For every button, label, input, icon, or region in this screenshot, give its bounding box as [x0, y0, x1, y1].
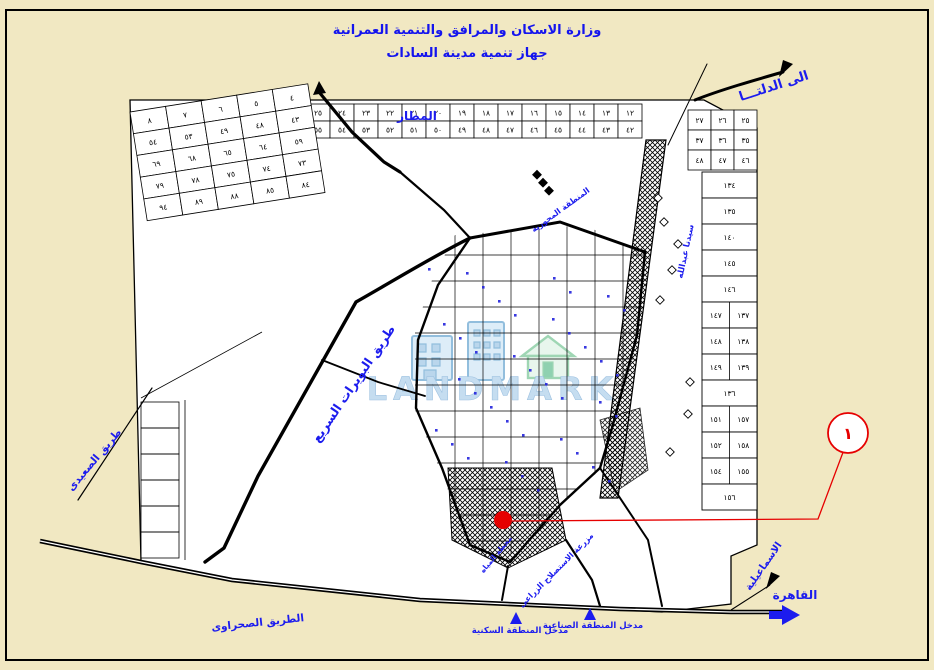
- parcel-number: ٢٥: [741, 116, 749, 125]
- parcel-number: ٤٨: [255, 120, 264, 130]
- building-tick: [505, 461, 508, 464]
- parcel-number: ٢٦: [718, 116, 726, 125]
- parcel-number: ٥٤: [148, 137, 157, 147]
- northeast-block-grid: ٢٧٢٦٢٥٣٧٣٦٣٥٤٨٤٧٤٦: [688, 110, 757, 170]
- parcel-number: ٤٨: [695, 156, 703, 165]
- parcel-number: ١٤٩: [710, 363, 722, 372]
- building-tick: [467, 457, 470, 460]
- building-tick: [537, 489, 540, 492]
- parcel-number: ٣٦: [718, 136, 726, 145]
- parcel-number: ١٣٨: [737, 337, 749, 346]
- building-tick: [498, 300, 501, 303]
- building-tick: [600, 360, 603, 363]
- parcel-number: ١٣٥: [723, 207, 735, 216]
- parcel-number: ٥٩: [294, 136, 303, 146]
- east-column-grid: ١٣٤١٣٥١٤٠١٤٥١٤٦١٤٧١٣٧١٤٨١٣٨١٤٩١٣٩١٣٦١٥١١…: [702, 172, 757, 510]
- label-industrial-entrance: مدخل المنطقة الصناعية: [543, 621, 643, 631]
- parcel-number: ١٤٨: [710, 337, 722, 346]
- building-tick: [466, 272, 469, 275]
- building-tick: [545, 383, 548, 386]
- parcel-number: ٥٠: [434, 126, 442, 135]
- parcel-number: ١٥٦: [723, 493, 735, 502]
- parcel-number: ٧٨: [191, 175, 200, 185]
- parcel-number: ١٤٠: [723, 233, 735, 242]
- parcel-number: ١٥٥: [737, 467, 749, 476]
- parcel-number: ٥٢: [386, 126, 394, 135]
- building-tick: [474, 392, 477, 395]
- ministry-title: وزارة الاسكان والمرافق والتنمية العمراني…: [333, 23, 602, 38]
- label-cairo: القاهرة: [773, 588, 818, 602]
- parcel-number: ١٥: [554, 109, 562, 118]
- label-airport: المطار: [396, 109, 437, 123]
- building-tick: [552, 318, 555, 321]
- cairo-arrow-icon: [769, 605, 800, 625]
- parcel-number: ١٣٤: [723, 181, 735, 190]
- parcel-number: ٥٣: [362, 126, 370, 135]
- parcel-number: ١٦: [530, 109, 538, 118]
- parcel-number: ١٨: [482, 109, 490, 118]
- building-tick: [569, 291, 572, 294]
- parcel-number: ٤٩: [219, 126, 228, 136]
- parcel-number: ٤٦: [741, 156, 749, 165]
- building-tick: [435, 429, 438, 432]
- north-arrow-icon: [313, 81, 326, 95]
- parcel-number: ٣٧: [695, 136, 703, 145]
- building-tick: [561, 397, 564, 400]
- building-tick: [560, 438, 563, 441]
- parcel-number: ٤٤: [578, 126, 586, 135]
- parcel-number: ٢٧: [695, 116, 703, 125]
- building-tick: [458, 378, 461, 381]
- parcel-number: ٦٥: [223, 148, 232, 158]
- building-tick: [568, 332, 571, 335]
- site-dot-marker: [494, 511, 512, 529]
- parcel-number: ١٣٧: [737, 311, 749, 320]
- parcel-number: ١٥٨: [737, 441, 749, 450]
- building-tick: [615, 415, 618, 418]
- junction-arrow-icon: [766, 572, 780, 589]
- parcel-number: ١٢: [626, 109, 634, 118]
- parcel-number: ٥١: [410, 126, 418, 135]
- parcel-number: ١٤٥: [723, 259, 735, 268]
- parcel-number: ٦٩: [152, 159, 161, 169]
- parcel-number: ٤٩: [458, 126, 466, 135]
- parcel-number: ٣٥: [741, 136, 749, 145]
- parcel-number: ٨٥: [265, 185, 274, 195]
- building-tick: [584, 346, 587, 349]
- building-tick: [592, 466, 595, 469]
- parcel-number: ٤٨: [482, 126, 490, 135]
- parcel-number: ٥٤: [338, 126, 346, 135]
- building-tick: [607, 295, 610, 298]
- building-tick: [553, 277, 556, 280]
- parcel-number: ١٣٩: [737, 363, 749, 372]
- parcel-number: ٦٨: [187, 153, 196, 163]
- parcel-number: ١٤٦: [723, 285, 735, 294]
- parcel-number: ٤٢: [626, 126, 634, 135]
- parcel-number: ٢٥: [314, 109, 322, 118]
- building-tick: [459, 337, 462, 340]
- parcel-number: ٤٧: [506, 126, 514, 135]
- parcel-number: ٤٣: [291, 115, 300, 125]
- parcel-number: ٨٤: [301, 180, 310, 190]
- parcel-number: ٥٣: [184, 132, 193, 142]
- parcel-number: ٨٨: [230, 191, 239, 201]
- parcel-number: ٧٣: [297, 158, 306, 168]
- building-tick: [608, 480, 611, 483]
- parcel-number: ٤٦: [530, 126, 538, 135]
- building-tick: [623, 309, 626, 312]
- map-page: وزارة الاسكان والمرافق والتنمية العمراني…: [0, 0, 934, 670]
- parcel-number: ٨٩: [194, 197, 203, 207]
- building-tick: [599, 401, 602, 404]
- building-tick: [521, 475, 524, 478]
- parcel-number: ١٣٦: [723, 389, 735, 398]
- parcel-number: ١٥٧: [737, 415, 749, 424]
- label-saeedi-road: طريق الصعيدى: [65, 427, 124, 494]
- parcel-number: ١٥٢: [710, 441, 722, 450]
- building-tick: [490, 406, 493, 409]
- city-map: وزارة الاسكان والمرافق والتنمية العمراني…: [0, 0, 934, 670]
- building-tick: [506, 420, 509, 423]
- parcel-number: ١٤٧: [710, 311, 722, 320]
- parcel-number: ١٤: [578, 109, 586, 118]
- parcel-number: ١٣: [602, 109, 610, 118]
- parcel-number: ٦٤: [258, 142, 267, 152]
- authority-title: جهاز تنمية مدينة السادات: [386, 46, 547, 61]
- building-tick: [513, 355, 516, 358]
- parcel-number: ١٥١: [710, 415, 722, 424]
- top-strip-grid: ٢٥٢٤٢٣٢٢٢١٢٠١٩١٨١٧١٦١٥١٤١٣١٢٥٥٥٤٥٣٥٢٥١٥٠…: [306, 104, 642, 138]
- parcel-number: ١٥٤: [710, 467, 722, 476]
- building-tick: [428, 268, 431, 271]
- parcel-number: ٤٧: [718, 156, 726, 165]
- parcel-number: ٧٥: [226, 169, 235, 179]
- building-tick: [529, 369, 532, 372]
- annotation-number: ١: [843, 424, 853, 443]
- parcel-number: ٧٤: [262, 164, 271, 174]
- building-tick: [576, 452, 579, 455]
- parcel-number: ٤٥: [554, 126, 562, 135]
- parcel-number: ٢٢: [386, 109, 394, 118]
- residential-entrance-arrow-icon: [510, 612, 522, 624]
- parcel-number: ٧٩: [155, 181, 164, 191]
- parcel-number: ١٧: [506, 109, 514, 118]
- building-tick: [443, 323, 446, 326]
- parcel-number: ٤٣: [602, 126, 610, 135]
- building-tick: [482, 286, 485, 289]
- label-desert-road: الطريق الصحراوى: [211, 612, 305, 634]
- building-tick: [522, 434, 525, 437]
- parcel-number: ١٩: [458, 109, 466, 118]
- parcel-number: ٢٣: [362, 109, 370, 118]
- building-tick: [616, 374, 619, 377]
- parcel-number: ٩٤: [159, 202, 168, 212]
- building-tick: [475, 351, 478, 354]
- building-tick: [451, 443, 454, 446]
- building-tick: [514, 314, 517, 317]
